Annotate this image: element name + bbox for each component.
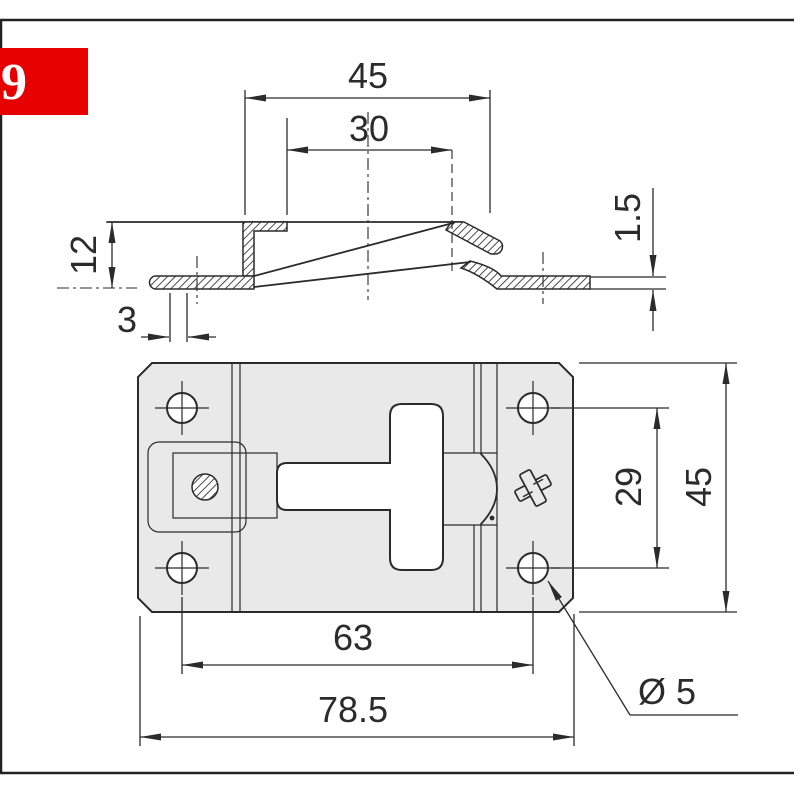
plan-view: 29 45 63 78.5 Ø 5 [138,363,738,746]
dim-45-plan-group: 45 [579,363,737,612]
hole-diameter-callout: Ø 5 [548,581,738,715]
index-tag: 9 [0,48,88,115]
dim-45-plan: 45 [678,467,719,507]
side-view: 45 30 12 3 1.5 [57,55,666,342]
technical-drawing-canvas: 9 45 30 [0,0,800,800]
detent-dot [490,516,495,521]
section-slanted-tab [446,222,502,254]
dim-45-top: 45 [348,55,388,96]
dim-29: 29 [608,467,649,507]
tab-edge-lower [254,262,470,287]
section-left-foot [150,276,255,289]
dim-12: 12 [63,235,104,275]
section-flange-wall [243,222,287,276]
dim-78-5: 78.5 [318,689,388,730]
index-tag-number: 9 [1,54,27,111]
section-right-foot [461,261,590,289]
dim-1-5-group: 1.5 [607,188,653,331]
dim-3-group: 3 [117,293,216,342]
dim-30: 30 [349,108,389,149]
rivet [192,474,218,500]
dim-1-5: 1.5 [607,193,648,243]
dim-12-group: 12 [57,222,137,288]
leader-line [548,581,630,715]
dim-3: 3 [117,299,137,340]
dim-63: 63 [333,617,373,658]
dim-30-group: 30 [287,108,452,215]
hole-diameter-label: Ø 5 [638,671,696,712]
